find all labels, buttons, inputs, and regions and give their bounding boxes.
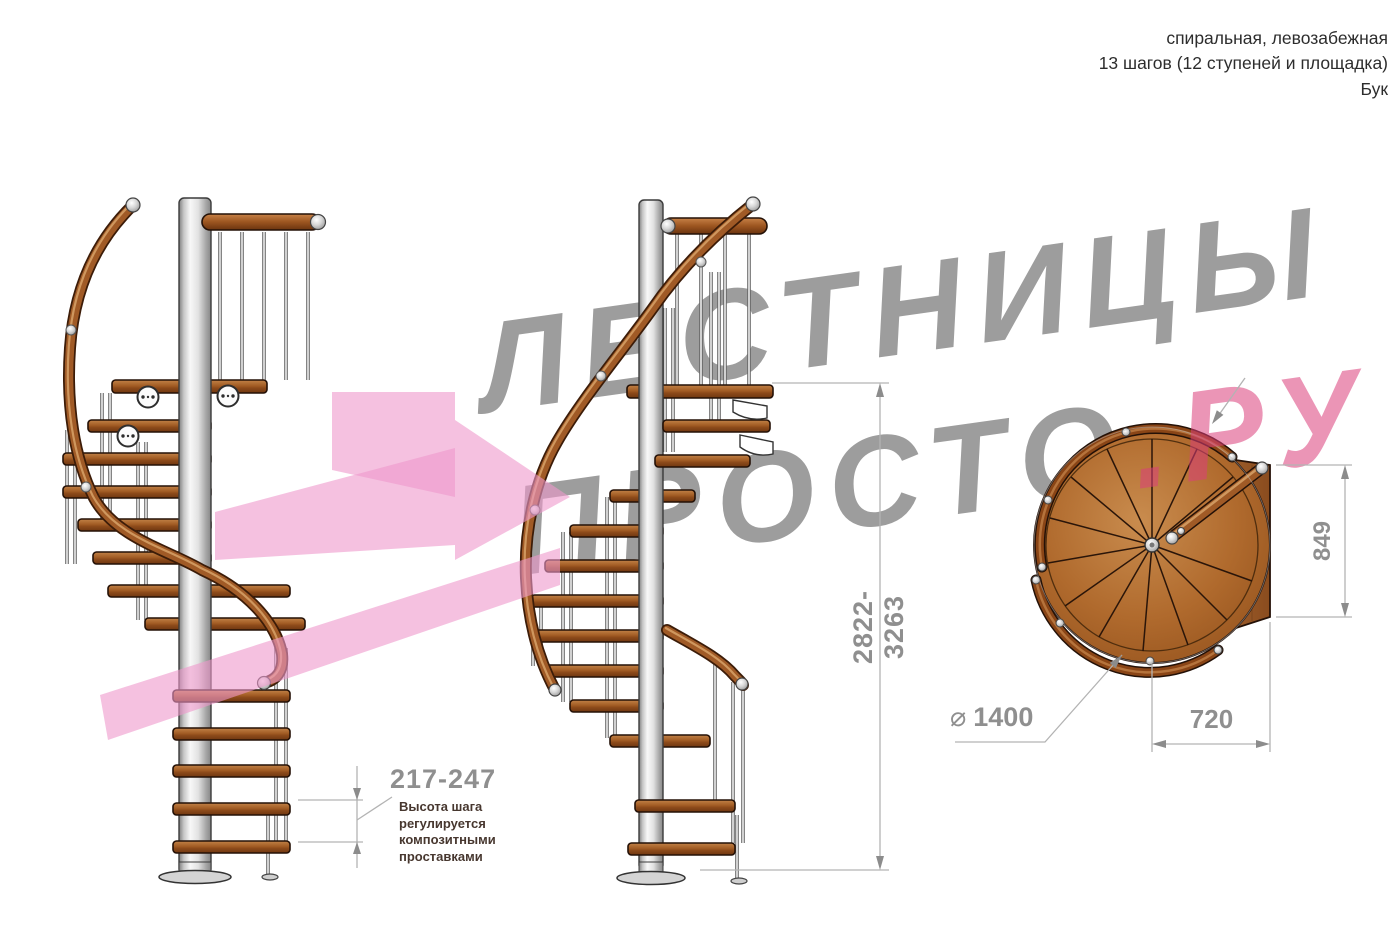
diameter-value: 1400 [973, 702, 1033, 733]
left-support-foot [262, 874, 278, 880]
pink-watermark-arrows [95, 385, 585, 745]
center-support-foot [731, 878, 747, 884]
technical-drawing-canvas: ЛЕСТНИЦЫ ПРОСТО.РУ [0, 0, 1400, 929]
drawing-header: спиральная, левозабежная 13 шагов (12 ст… [1099, 26, 1388, 102]
left-base-flange [159, 862, 231, 884]
pink-arrow-head [455, 420, 570, 560]
left-top-rail [202, 214, 326, 230]
diameter-symbol: ⌀ [950, 702, 966, 733]
header-type-line: спиральная, левозабежная [1099, 26, 1388, 51]
diameter-dimension: ⌀ 1400 [950, 702, 1033, 733]
pink-arrow-low-band [100, 548, 560, 740]
header-material-line: Бук [1099, 77, 1388, 102]
plan-center-pole [1145, 538, 1159, 552]
step-height-note: Высота шага регулируется композитными пр… [399, 799, 529, 865]
header-steps-line: 13 шагов (12 ступеней и площадка) [1099, 51, 1388, 76]
platform-depth-dimension: 720 [1164, 704, 1259, 735]
center-base-flange [617, 862, 685, 885]
staircase-plan-view [1000, 405, 1360, 705]
